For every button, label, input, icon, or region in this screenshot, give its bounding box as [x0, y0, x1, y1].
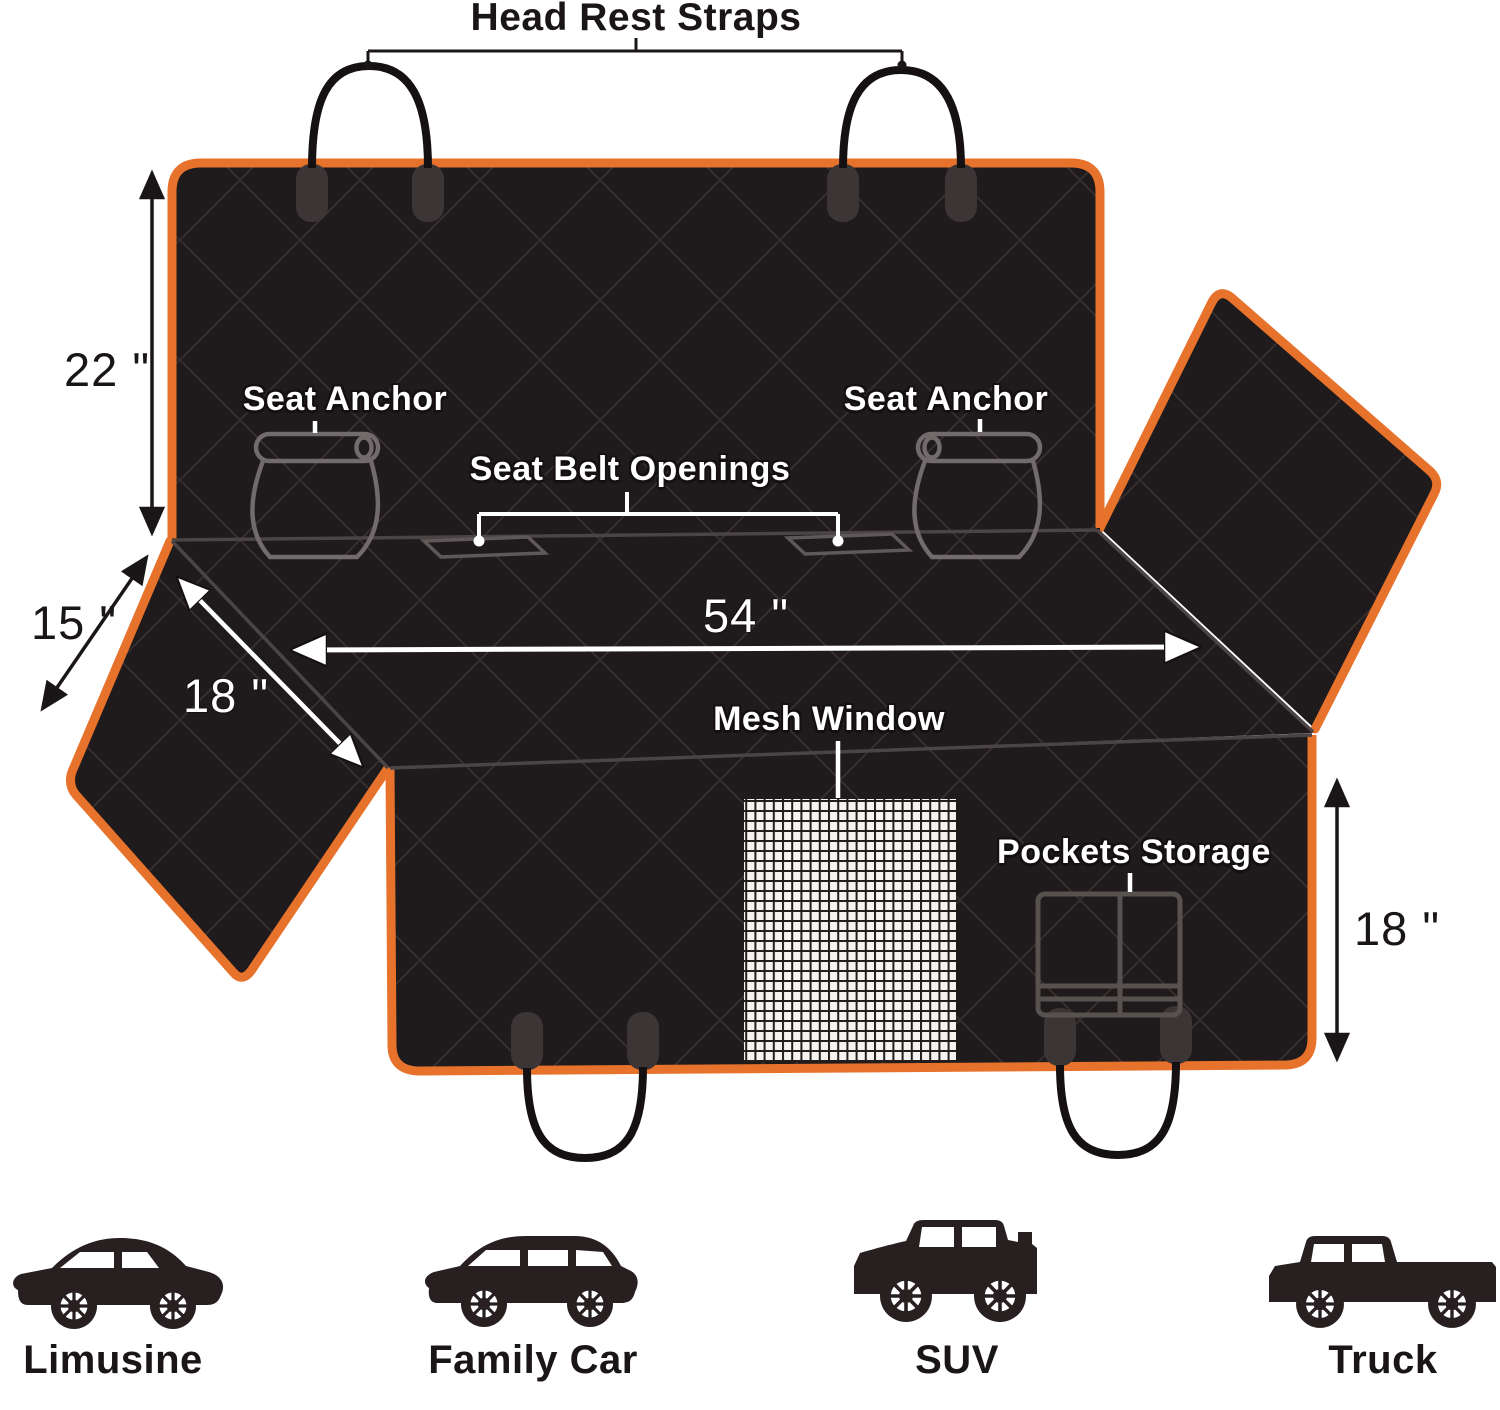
dimension-seat-width: 54 ": [703, 588, 789, 643]
wagon-icon: [425, 1236, 638, 1327]
mesh-window-label: Mesh Window: [713, 700, 945, 739]
headrest-bracket: [364, 38, 907, 70]
mesh-window-panel: [744, 799, 956, 1062]
vehicle-label-truck: Truck: [1328, 1338, 1437, 1383]
dimension-flap-diagonal: 18 ": [183, 668, 269, 723]
bottom-strap-left: [527, 1067, 643, 1158]
vehicle-label-suv: SUV: [915, 1338, 999, 1383]
dimension-flap-edge: 15 ": [31, 595, 117, 650]
vehicle-label-limusine: Limusine: [23, 1338, 203, 1383]
headrest-strap-left: [312, 66, 428, 168]
head-rest-straps-label: Head Rest Straps: [471, 0, 802, 40]
sedan-icon: [13, 1238, 223, 1329]
arrow-seat-width-54: [295, 647, 1196, 650]
pockets-storage-label: Pockets Storage: [997, 833, 1271, 872]
product-diagram: Head Rest Straps Seat Anchor Seat Anchor…: [0, 0, 1500, 1410]
dimension-back-height: 22 ": [64, 342, 150, 397]
seat-belt-openings-label: Seat Belt Openings: [470, 450, 791, 489]
seat-anchor-right-label: Seat Anchor: [844, 380, 1049, 419]
vehicle-label-family-car: Family Car: [428, 1338, 638, 1383]
seat-belt-opening-right: [788, 534, 909, 554]
headrest-strap-right: [843, 70, 961, 168]
seat-belt-opening-left: [424, 537, 545, 557]
dimension-front-drop: 18 ": [1354, 901, 1440, 956]
bottom-strap-right: [1060, 1062, 1176, 1155]
truck-icon: [1269, 1236, 1496, 1328]
seat-anchor-left-label: Seat Anchor: [243, 380, 448, 419]
suv-icon: [854, 1220, 1037, 1322]
